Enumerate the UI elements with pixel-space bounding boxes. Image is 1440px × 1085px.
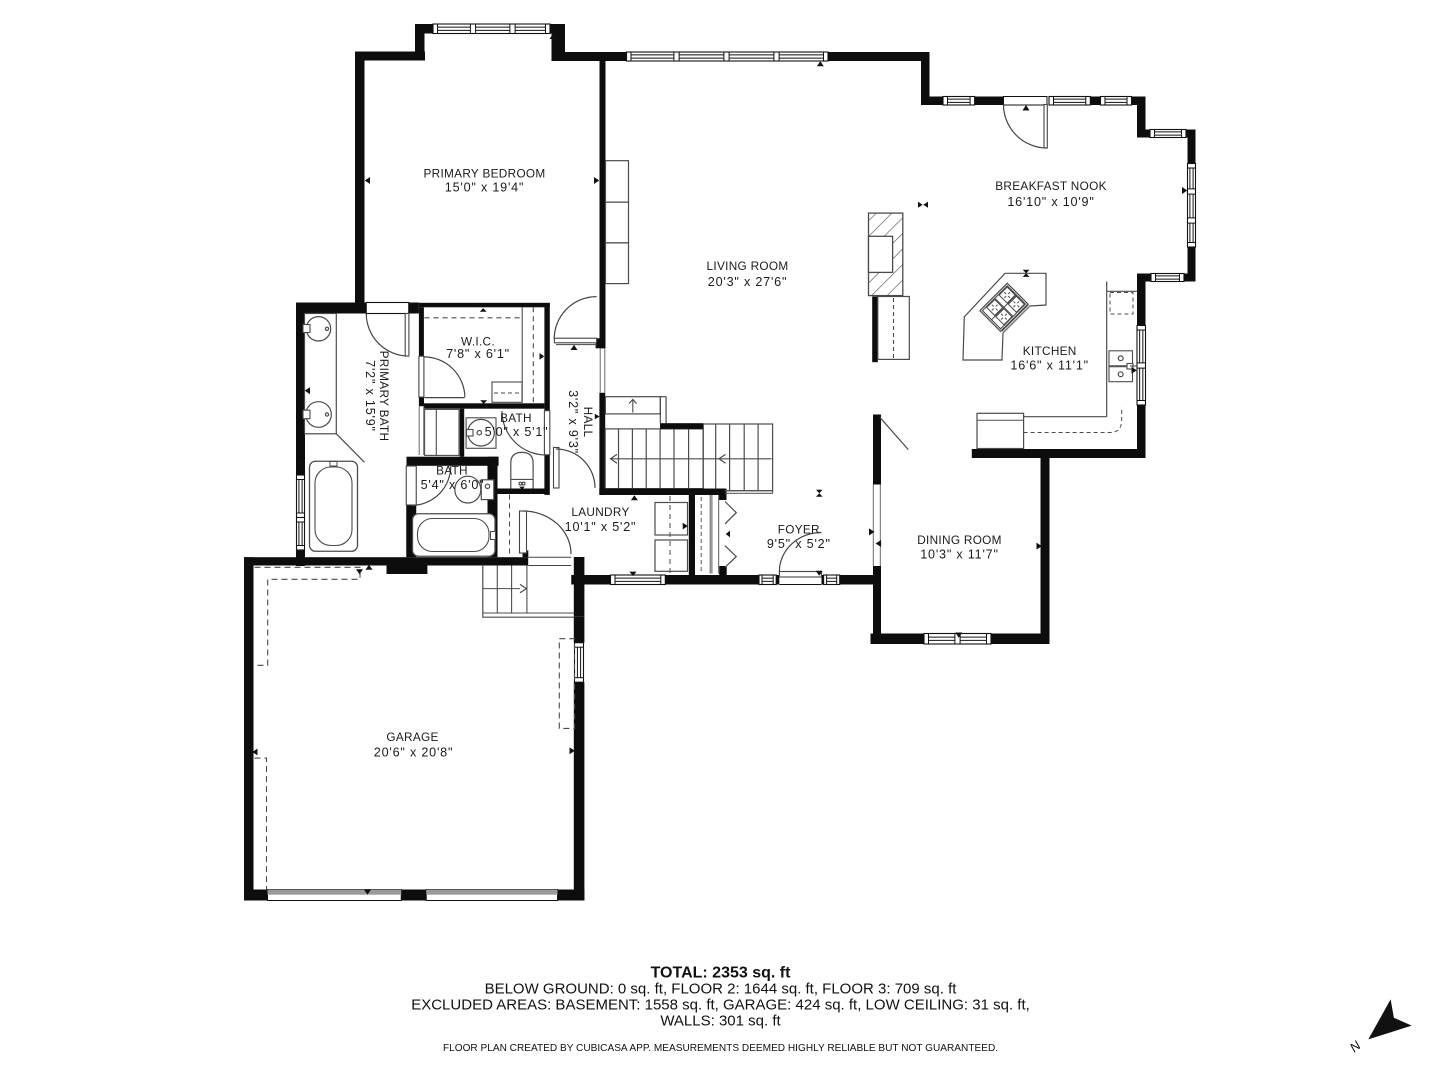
svg-text:BELOW GROUND: 0 sq. ft, FLOOR: BELOW GROUND: 0 sq. ft, FLOOR 2: 1644 sq… [485, 981, 958, 998]
svg-text:9'5" x 5'2": 9'5" x 5'2" [767, 537, 831, 551]
svg-text:WALLS: 301 sq. ft: WALLS: 301 sq. ft [660, 1013, 781, 1030]
svg-text:BATH: BATH [500, 411, 532, 425]
svg-text:HALL: HALL [581, 407, 595, 438]
svg-text:LIVING ROOM: LIVING ROOM [707, 259, 789, 273]
svg-text:DINING ROOM: DINING ROOM [917, 533, 1002, 547]
svg-text:10'3" x 11'7": 10'3" x 11'7" [920, 548, 999, 562]
svg-text:KITCHEN: KITCHEN [1023, 344, 1077, 358]
svg-text:15'0" x 19'4": 15'0" x 19'4" [445, 181, 524, 195]
svg-text:7'8" x 6'1": 7'8" x 6'1" [446, 347, 510, 361]
svg-text:16'6" x 11'1": 16'6" x 11'1" [1010, 359, 1089, 373]
svg-text:BREAKFAST NOOK: BREAKFAST NOOK [995, 179, 1107, 193]
svg-text:FOYER: FOYER [778, 523, 820, 537]
svg-text:BATH: BATH [436, 464, 468, 478]
svg-text:3'2" x 9'3": 3'2" x 9'3" [566, 390, 580, 454]
svg-text:LAUNDRY: LAUNDRY [571, 505, 629, 519]
svg-text:5'0" x 5'1": 5'0" x 5'1" [485, 425, 549, 439]
svg-text:PRIMARY BEDROOM: PRIMARY BEDROOM [423, 167, 545, 181]
svg-text:10'1" x 5'2": 10'1" x 5'2" [565, 520, 637, 534]
svg-text:5'4" x 6'0": 5'4" x 6'0" [421, 478, 485, 492]
svg-text:EXCLUDED AREAS: BASEMENT: 1558: EXCLUDED AREAS: BASEMENT: 1558 sq. ft, G… [411, 997, 1030, 1014]
svg-text:FLOOR PLAN CREATED BY CUBICASA: FLOOR PLAN CREATED BY CUBICASA APP. MEAS… [443, 1043, 998, 1054]
svg-text:7'2" x 15'9": 7'2" x 15'9" [363, 360, 377, 432]
svg-text:20'6" x 20'8": 20'6" x 20'8" [374, 746, 453, 760]
svg-text:GARAGE: GARAGE [386, 730, 438, 744]
svg-text:16'10" x 10'9": 16'10" x 10'9" [1007, 195, 1094, 209]
svg-text:20'3" x 27'6": 20'3" x 27'6" [708, 275, 787, 289]
svg-text:PRIMARY BATH: PRIMARY BATH [377, 351, 391, 442]
svg-text:TOTAL: 2353 sq. ft: TOTAL: 2353 sq. ft [651, 965, 792, 982]
